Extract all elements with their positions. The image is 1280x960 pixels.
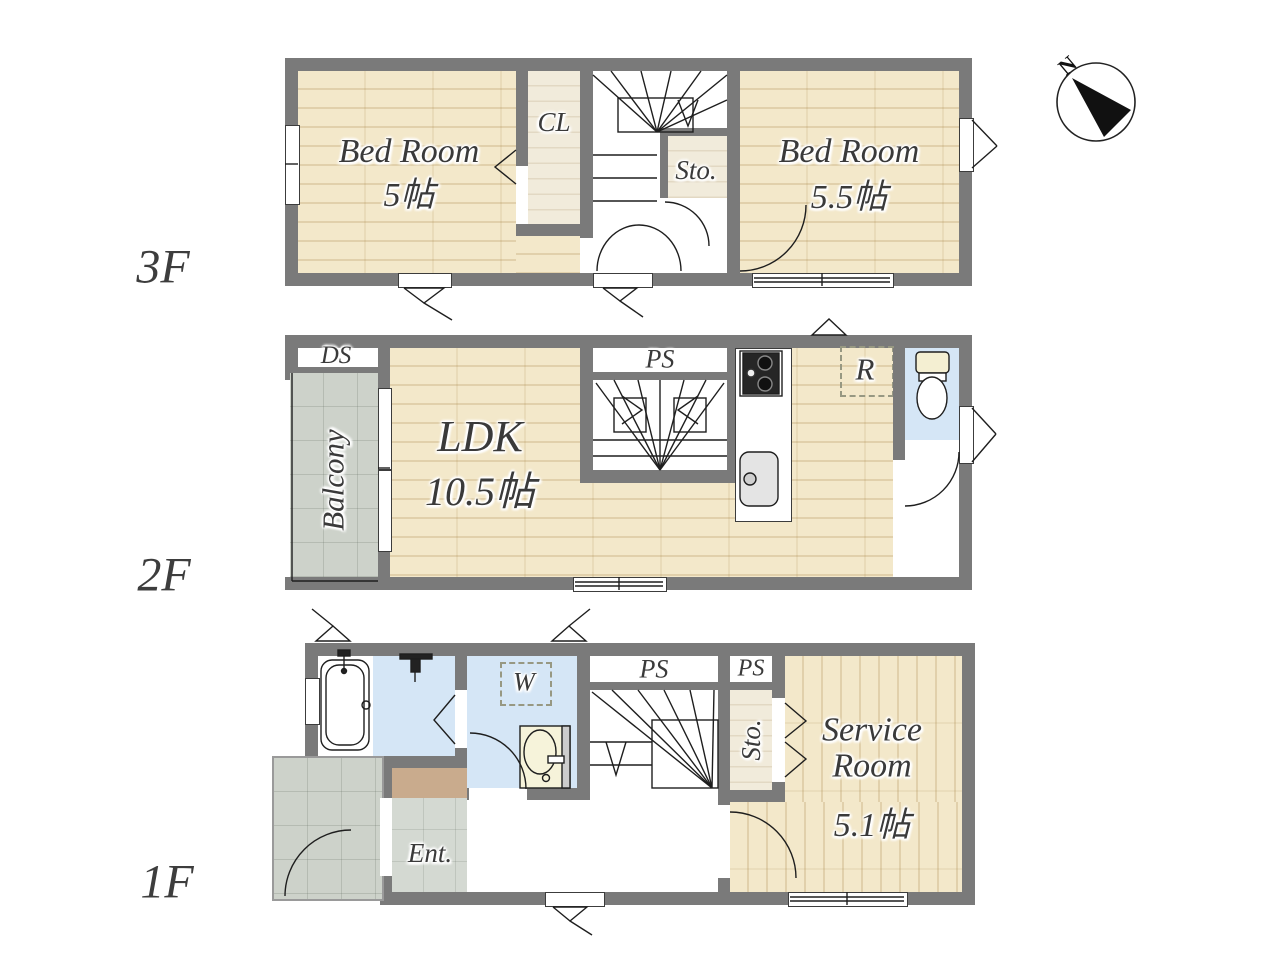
awning-window-mark: [603, 288, 643, 317]
stairwell-2f: [593, 380, 727, 470]
bathtub-room-floor: [318, 656, 373, 756]
hall-1f: [590, 790, 718, 892]
service-door-gap: [718, 805, 730, 878]
wall: [959, 58, 972, 286]
bedroom1-size: 5帖: [384, 178, 435, 214]
awning-window-mark: [553, 907, 592, 935]
window-sliding: [788, 892, 908, 907]
toilet-hall: [905, 440, 959, 577]
window-sliding: [752, 273, 894, 288]
window: [959, 406, 974, 464]
window-sliding: [573, 577, 667, 592]
stairwell-1f: [590, 690, 718, 790]
casement-window-mark-3f: [972, 120, 997, 168]
floor-label-3f: 3F: [136, 240, 189, 295]
closet-door-gap: [516, 166, 528, 224]
storage-label-3f: Sto.: [675, 156, 716, 184]
entrance-step: [392, 768, 467, 798]
wall: [285, 58, 972, 71]
toilet-room-floor: [905, 348, 959, 440]
front-door-gap: [380, 798, 392, 876]
vent-mark-top-bath: [312, 609, 350, 641]
wall: [516, 224, 580, 236]
bedroom1-label: Bed Room: [339, 134, 480, 170]
service-room-label: Service Room: [782, 712, 962, 783]
bedroom2-label: Bed Room: [779, 134, 920, 170]
wall: [660, 128, 668, 198]
balcony-label: Balcony: [318, 429, 351, 531]
porch-floor: [272, 756, 384, 901]
pipe-space2-label: PS: [738, 656, 765, 681]
closet-floor: [528, 71, 580, 224]
ldk-label: LDK: [437, 414, 523, 460]
awning-window-mark: [404, 288, 452, 320]
window: [378, 470, 392, 552]
window: [378, 388, 392, 470]
floor-plan-canvas: Bed Room 5帖 CL Sto. Bed Room 5.5帖 3F: [0, 0, 1280, 960]
wall: [580, 348, 593, 483]
refrigerator-label: R: [856, 354, 875, 387]
pipe-space-label-2f: PS: [646, 345, 675, 372]
pipe-space1-label: PS: [640, 655, 669, 682]
floor-label-2f: 2F: [137, 548, 190, 603]
window: [593, 273, 653, 288]
closet-label: CL: [537, 108, 570, 136]
entrance-label: Ent.: [408, 839, 452, 867]
floor-label-1f: 1F: [140, 855, 193, 910]
washroom-door-gap: [469, 788, 527, 800]
duct-space-label: DS: [321, 343, 352, 369]
window: [305, 678, 320, 725]
vent-mark-top-washroom: [552, 609, 590, 641]
bedroom2-size: 5.5帖: [811, 180, 888, 216]
window: [285, 125, 300, 205]
storage-label-1f: Sto.: [737, 719, 765, 760]
bedroom1-floor: [298, 71, 516, 273]
casement-window-mark-2f: [972, 408, 996, 462]
washer-label: W: [513, 668, 535, 695]
compass-north-label: N: [1053, 50, 1081, 79]
wall: [718, 790, 785, 802]
window: [959, 118, 974, 172]
wall: [893, 348, 905, 460]
wall: [580, 71, 593, 238]
wall: [580, 470, 740, 483]
wall: [516, 71, 528, 166]
bedroom1-floor-ext: [516, 236, 580, 273]
window: [545, 892, 605, 907]
wall: [577, 643, 590, 790]
wall: [660, 128, 727, 136]
hall-1f-left: [467, 800, 590, 892]
shower-floor: [373, 656, 455, 756]
bath-door-gap: [455, 690, 467, 748]
compass: N: [1053, 50, 1135, 141]
window: [398, 273, 452, 288]
bedroom2-floor: [740, 71, 959, 273]
ldk-size: 10.5帖: [425, 471, 535, 513]
wall: [962, 643, 975, 905]
kitchen-counter: [735, 348, 792, 522]
vent-mark-top-2f: [812, 319, 846, 335]
service-room-size: 5.1帖: [834, 808, 911, 844]
wall: [378, 335, 390, 380]
wall: [730, 682, 772, 690]
wall: [718, 643, 730, 802]
wall: [727, 71, 740, 273]
